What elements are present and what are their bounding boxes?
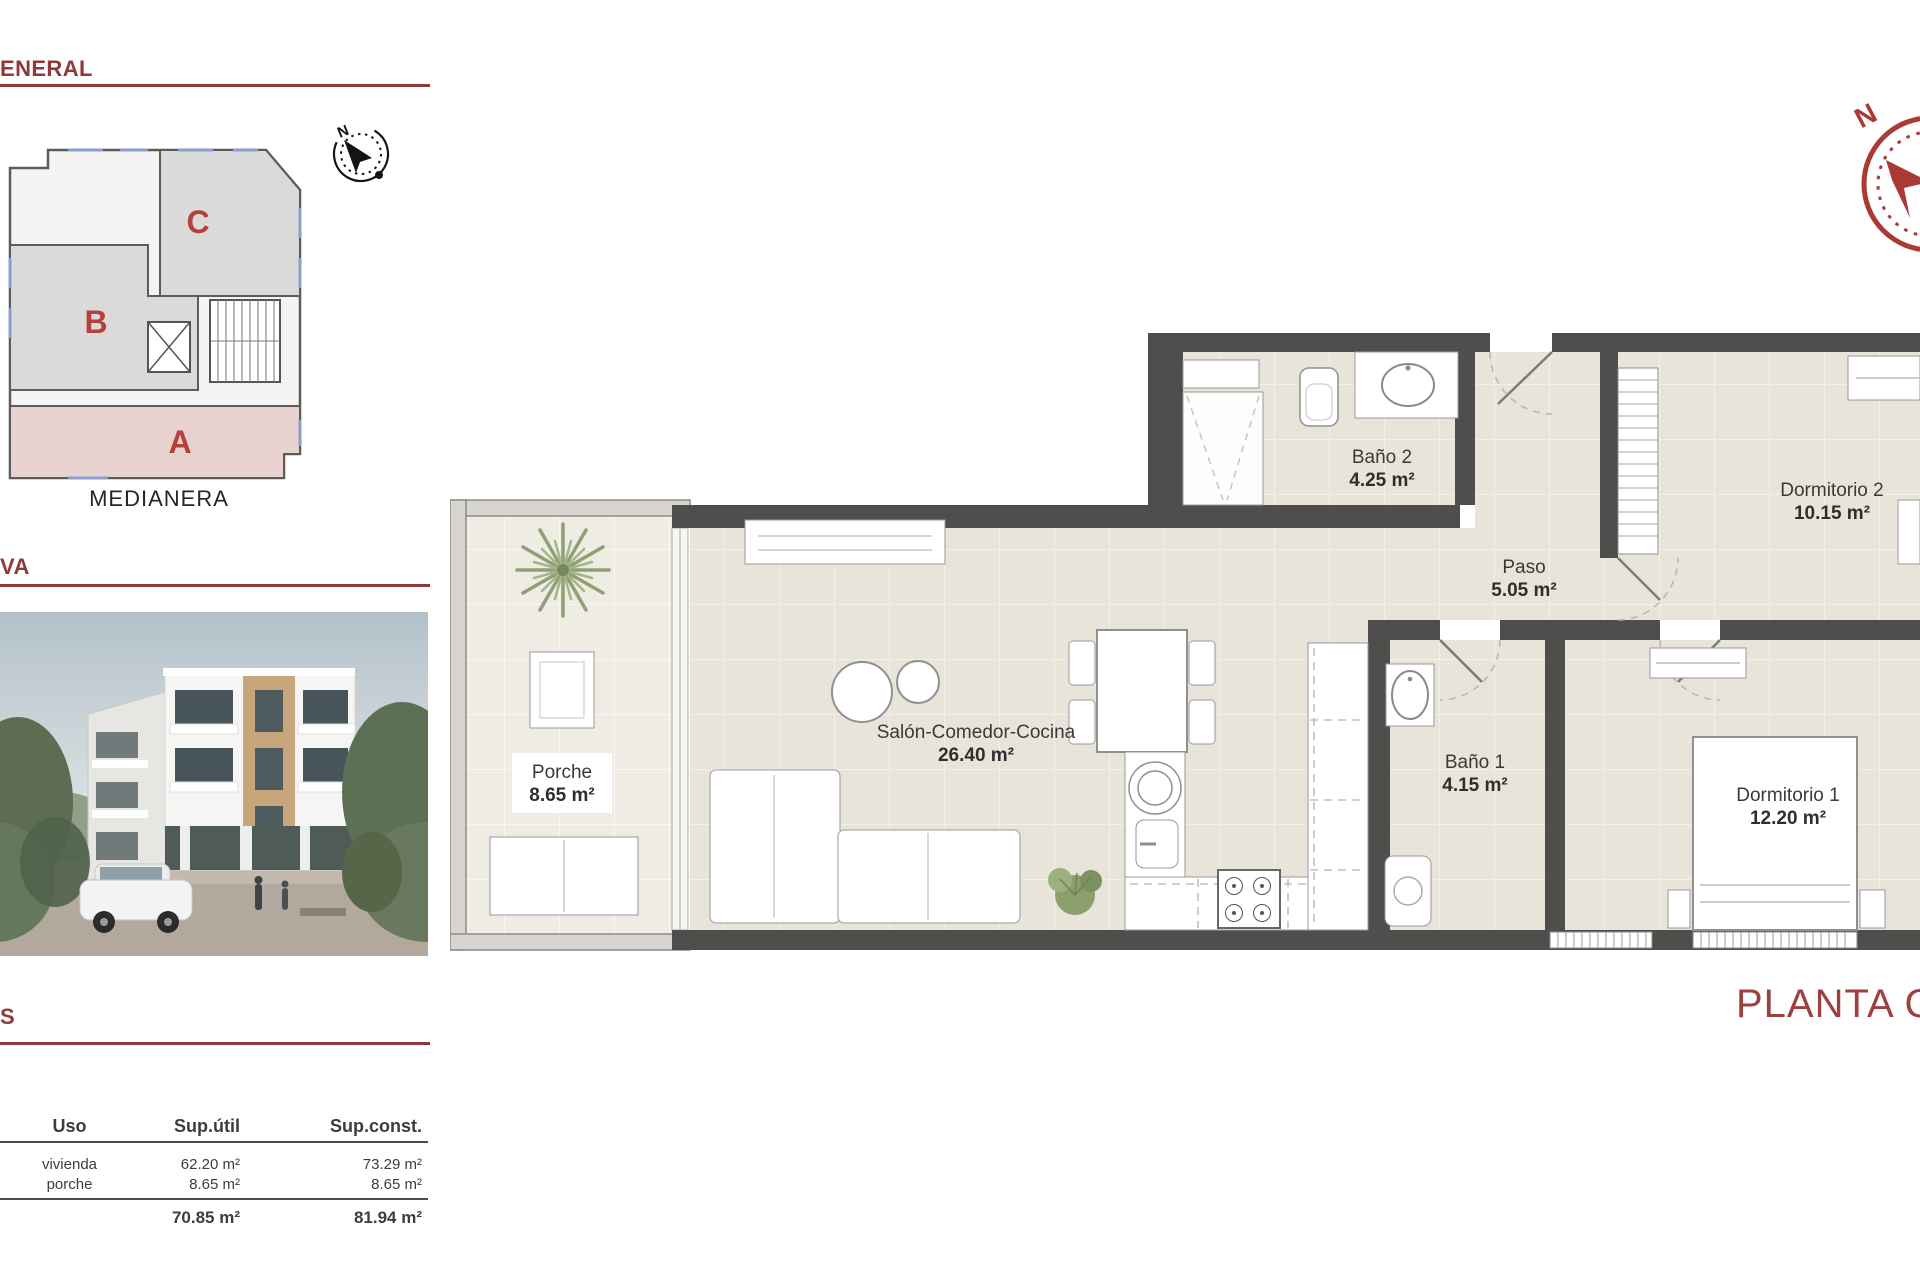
sideboard bbox=[745, 520, 945, 564]
site-compass-north: N bbox=[335, 122, 351, 142]
table-line-top bbox=[0, 1141, 428, 1143]
fridge-column bbox=[1308, 643, 1368, 930]
row-porche-uso: porche bbox=[22, 1176, 117, 1193]
chair bbox=[1189, 700, 1215, 744]
compass-north-label: N bbox=[1849, 97, 1881, 134]
plan-sheet: ENERAL C B A N MEDIANERA VA bbox=[0, 0, 1920, 1280]
row-porche-util: 8.65 m² bbox=[110, 1176, 240, 1193]
banyo2-name: Baño 2 bbox=[1352, 447, 1412, 468]
banyo2-area: 4.25 m² bbox=[1349, 470, 1414, 491]
paso-name: Paso bbox=[1502, 557, 1545, 578]
shower bbox=[1183, 392, 1263, 505]
salon-name: Salón-Comedor-Cocina bbox=[877, 722, 1076, 743]
shelf bbox=[1183, 360, 1259, 388]
paso-area: 5.05 m² bbox=[1491, 580, 1556, 601]
floor-caption: PLANTA CUA bbox=[1736, 982, 1920, 1027]
title-underline bbox=[0, 84, 430, 87]
compass-rose-icon: N bbox=[1838, 72, 1920, 262]
surfaces-underline bbox=[0, 1042, 430, 1045]
stove bbox=[1218, 870, 1280, 928]
render-underline bbox=[0, 584, 430, 587]
dorm1-area: 12.20 m² bbox=[1750, 808, 1826, 829]
stairs-symbol bbox=[210, 300, 280, 382]
building-render bbox=[0, 612, 428, 956]
site-compass-icon: N bbox=[330, 118, 396, 188]
header-uso: Uso bbox=[22, 1116, 117, 1137]
header-sup-const: Sup.const. bbox=[288, 1116, 422, 1137]
nightstand bbox=[1668, 890, 1690, 928]
site-key-plan: C B A bbox=[8, 138, 308, 483]
floor-plan: Baño 2 4.25 m² Dormitorio 2 10.15 m² Pas… bbox=[450, 330, 1920, 955]
salon-area: 26.40 m² bbox=[938, 745, 1014, 766]
dorm1-name: Dormitorio 1 bbox=[1736, 785, 1839, 806]
porche-name: Porche bbox=[532, 762, 592, 783]
nightstand bbox=[1860, 890, 1885, 928]
general-plan-title: ENERAL bbox=[0, 56, 93, 82]
banyo1-area: 4.15 m² bbox=[1442, 775, 1507, 796]
chair bbox=[1069, 641, 1095, 685]
sofa-seat bbox=[838, 830, 1020, 923]
wardrobe bbox=[1618, 368, 1658, 554]
sliding-door bbox=[672, 528, 688, 930]
medianera-caption: MEDIANERA bbox=[25, 486, 293, 512]
washer bbox=[1385, 856, 1431, 926]
unit-label-c: C bbox=[186, 204, 209, 240]
row-porche-const: 8.65 m² bbox=[288, 1176, 422, 1193]
porche-area: 8.65 m² bbox=[529, 785, 594, 806]
compass-needle bbox=[1886, 160, 1920, 218]
row-vivienda-util: 62.20 m² bbox=[110, 1156, 240, 1173]
row-vivienda-const: 73.29 m² bbox=[288, 1156, 422, 1173]
dorm2-area: 10.15 m² bbox=[1794, 503, 1870, 524]
total-const: 81.94 m² bbox=[288, 1208, 422, 1228]
unit-a-area bbox=[10, 406, 300, 478]
unit-c-area bbox=[148, 150, 300, 296]
total-util: 70.85 m² bbox=[110, 1208, 240, 1228]
dining-table bbox=[1097, 630, 1187, 752]
elevator-symbol bbox=[148, 322, 190, 372]
dorm1-windows bbox=[1550, 932, 1857, 948]
bed bbox=[1693, 737, 1857, 930]
surfaces-title: S bbox=[0, 1004, 15, 1030]
unit-label-a: A bbox=[168, 424, 191, 460]
row-vivienda-uso: vivienda bbox=[22, 1156, 117, 1173]
side-table bbox=[897, 661, 939, 703]
banyo1-name: Baño 1 bbox=[1445, 752, 1505, 773]
chair bbox=[1189, 641, 1215, 685]
header-sup-util: Sup.útil bbox=[110, 1116, 240, 1137]
unit-label-b: B bbox=[84, 304, 107, 340]
render-title: VA bbox=[0, 554, 30, 580]
sofa-chaise bbox=[710, 770, 840, 923]
table-line-bottom bbox=[0, 1198, 428, 1200]
coffee-table bbox=[832, 662, 892, 722]
bed-edge bbox=[1898, 500, 1920, 564]
dorm2-name: Dormitorio 2 bbox=[1780, 480, 1883, 501]
